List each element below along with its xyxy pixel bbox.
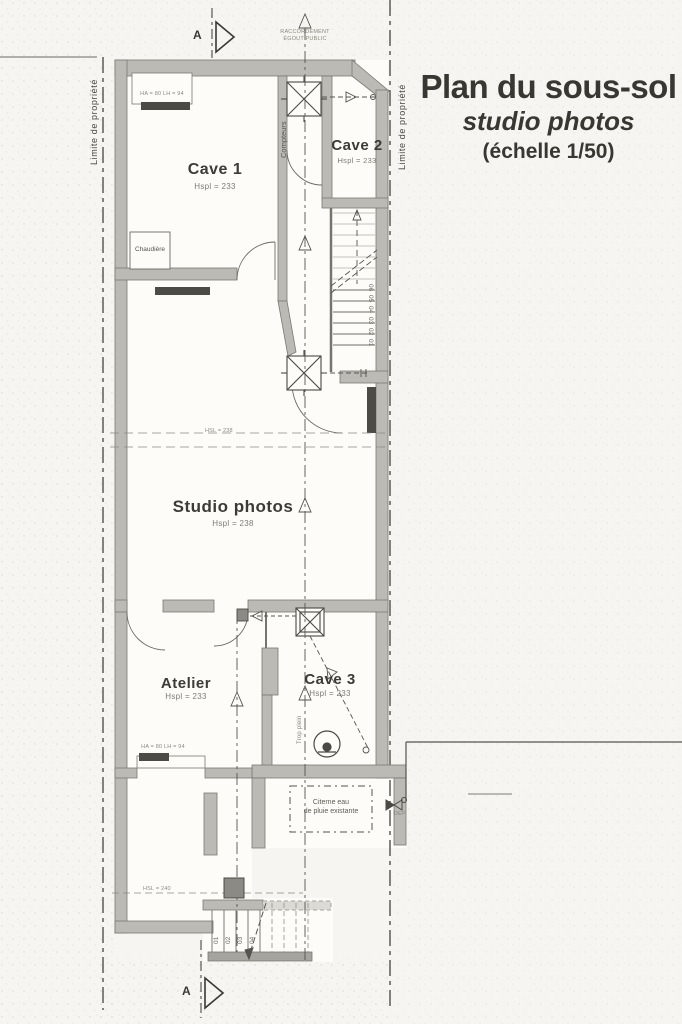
room-label-cave2: Cave 2	[328, 138, 386, 154]
upper-step-number: 03	[367, 317, 374, 324]
upper-step-number: 02	[367, 328, 374, 335]
property-limit-left: Limite de propriété	[90, 79, 99, 165]
trop-plein-label: Trop plein	[297, 716, 303, 744]
room-height-atelier: Hspl = 233	[140, 693, 232, 701]
window-dim-atelier: HA = 80 LH = 94	[118, 745, 208, 751]
room-height-cave2: Hspl = 233	[328, 157, 386, 165]
upper-step-number: 04	[367, 306, 374, 313]
lower-step-number: 04	[249, 937, 256, 944]
hsl-corridor-label: HSL = 240	[143, 887, 171, 893]
dep-label: DEP	[394, 812, 406, 818]
studio-right-radiator	[367, 387, 376, 433]
property-limit-right: Limite de propriété	[398, 84, 407, 170]
raccordement-label-2: ÉGOUT PUBLIC	[268, 37, 342, 43]
chamber-cave3	[296, 608, 324, 636]
room-label-studio: Studio photos	[158, 498, 308, 516]
section-marker-top: A	[193, 29, 202, 42]
lower-step-number: 01	[213, 937, 220, 944]
upper-step-number: 06	[367, 284, 374, 291]
room-label-atelier: Atelier	[140, 676, 232, 692]
citerne-label-2: de pluie existante	[289, 808, 373, 815]
chaudiere-label: Chaudière	[129, 247, 171, 254]
hsl-studio-label: HSL = 238	[205, 429, 233, 435]
page-subtitle: studio photos	[415, 108, 682, 135]
lower-step-number: 03	[237, 937, 244, 944]
room-label-cave3: Cave 3	[288, 672, 372, 688]
raccordement-label-1: RACCORDEMENT	[268, 30, 342, 36]
upper-step-number: 05	[367, 295, 374, 302]
studio-left-radiator	[155, 287, 210, 295]
chamber-studio	[281, 350, 327, 396]
upper-step-number: 01	[367, 339, 374, 346]
chamber-compteurs	[281, 76, 327, 122]
room-height-cave3: Hspl = 233	[288, 690, 372, 698]
citerne-label-1: Citerne eau	[289, 799, 373, 806]
section-marker-bottom: A	[182, 985, 191, 998]
lower-step-number: 02	[225, 937, 232, 944]
window-dim-cave1: HA = 80 LH = 94	[133, 92, 191, 98]
room-height-studio: Hspl = 238	[158, 520, 308, 528]
compteurs-label: Compteurs	[280, 121, 288, 158]
room-label-cave1: Cave 1	[160, 162, 270, 179]
page-title: Plan du sous-sol	[415, 70, 682, 105]
floor-plan-page: Plan du sous-sol studio photos (échelle …	[0, 0, 682, 1024]
room-height-cave1: Hspl = 233	[160, 183, 270, 191]
page-scale: (échelle 1/50)	[415, 141, 682, 163]
